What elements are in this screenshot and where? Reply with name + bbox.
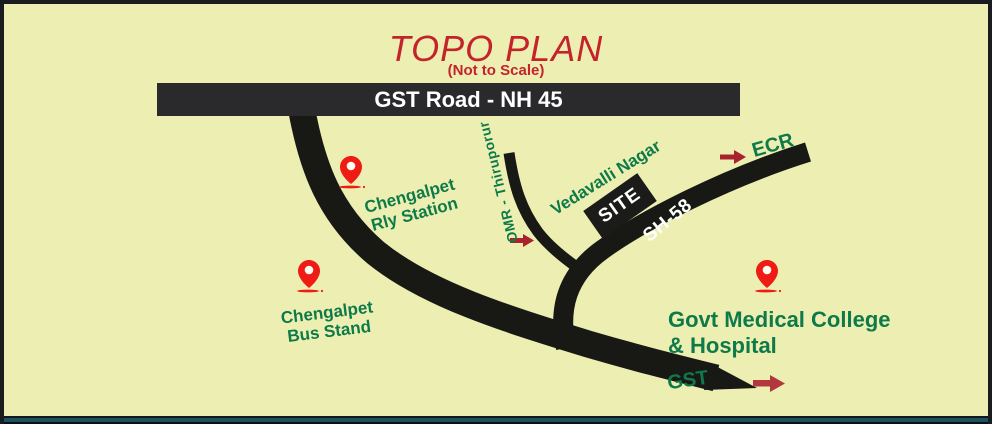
gst-road-label: GST Road - NH 45 xyxy=(374,87,562,113)
topo-plan-map: TOPO PLAN (Not to Scale) GST Road - NH 4… xyxy=(0,0,992,424)
gst-road-bar: GST Road - NH 45 xyxy=(157,83,740,116)
medical-college-label-line1: Govt Medical College xyxy=(668,307,891,333)
bottom-border xyxy=(4,416,988,424)
rly-station-pin-icon xyxy=(339,156,365,188)
medical-college-label-line2: & Hospital xyxy=(668,333,891,359)
medical-college-pin-icon xyxy=(755,260,781,292)
medical-college-label: Govt Medical College & Hospital xyxy=(668,307,891,358)
not-to-scale-note: (Not to Scale) xyxy=(4,62,988,79)
bus-stand-pin-icon xyxy=(297,260,323,292)
ecr-direction-arrow-icon xyxy=(720,150,746,164)
gst-direction-arrow-icon xyxy=(753,375,785,392)
